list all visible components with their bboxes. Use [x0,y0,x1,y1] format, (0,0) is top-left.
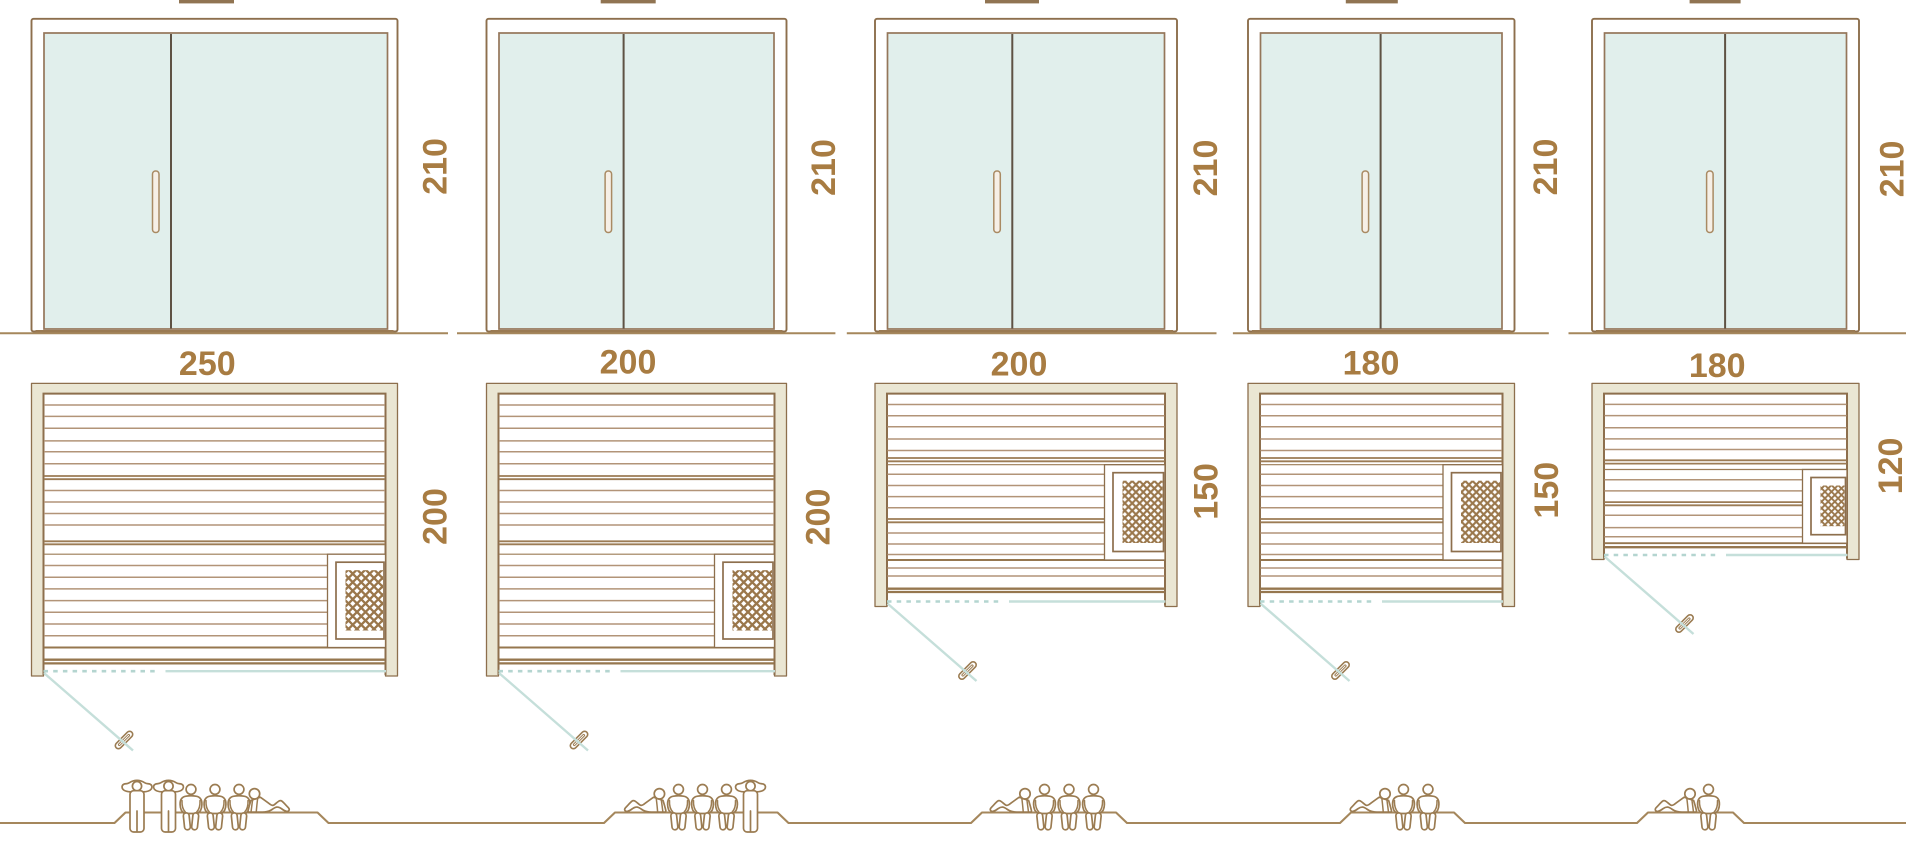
svg-text:120: 120 [1872,438,1910,495]
svg-text:210: 210 [1874,141,1912,198]
svg-text:210: 210 [1527,139,1565,196]
svg-text:200: 200 [800,489,838,546]
svg-text:180: 180 [1343,344,1400,382]
svg-text:200: 200 [417,488,455,545]
svg-text:200: 200 [600,344,657,382]
svg-text:180: 180 [1689,347,1746,385]
svg-text:200: 200 [991,346,1048,384]
svg-text:250: 250 [179,345,236,383]
svg-text:150: 150 [1528,462,1566,519]
svg-text:150: 150 [1187,463,1225,520]
svg-text:210: 210 [1187,140,1225,197]
svg-text:210: 210 [805,139,843,196]
svg-text:210: 210 [417,138,455,195]
